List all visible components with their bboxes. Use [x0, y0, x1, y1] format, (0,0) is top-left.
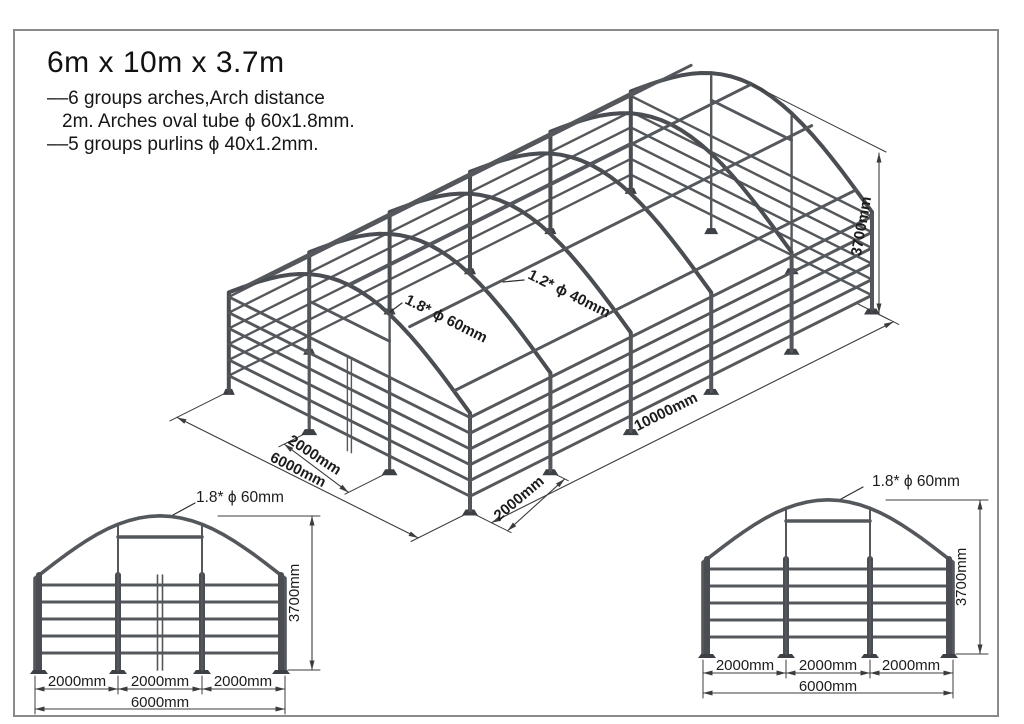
- near-side-rail: [470, 264, 872, 465]
- front-door-header: [309, 301, 389, 341]
- front-end-rail: [229, 360, 470, 481]
- dim-arrow: [703, 671, 713, 676]
- base-plate: [704, 228, 718, 234]
- dim-arrow: [409, 531, 420, 540]
- front-end-rail: [229, 313, 470, 434]
- elevation-foot: [698, 654, 716, 658]
- near-side-rail: [470, 280, 872, 481]
- near-side-rail: [470, 217, 872, 418]
- extension-line: [345, 472, 390, 494]
- elevation-foot: [272, 670, 290, 674]
- far-side-rail: [229, 159, 631, 360]
- front-tube-diameter-label: 1.8* ϕ 60mm: [196, 489, 284, 506]
- drawing-canvas: 1.8* ϕ 60mm 1.2* ϕ 40mm 2000mm 6000mm 20…: [0, 0, 1024, 724]
- front-bay-dim-2: 2000mm: [131, 673, 189, 690]
- rear-bay-dim-1: 2000mm: [716, 657, 774, 674]
- dim-arrow: [877, 153, 882, 163]
- dim-arrow: [310, 516, 315, 526]
- rear-end-rail: [631, 159, 872, 280]
- dim-arrow: [861, 671, 871, 676]
- front-height-dim: 3700mm: [286, 564, 303, 622]
- rear-tube-diameter-label: 1.8* ϕ 60mm: [872, 473, 960, 490]
- dim-arrow: [276, 687, 286, 692]
- tube-callout-leader: [841, 487, 863, 499]
- dim-arrow: [109, 687, 119, 692]
- rear-end-rail: [631, 127, 872, 248]
- dim-arrow: [202, 687, 212, 692]
- dim-arrow: [786, 671, 796, 676]
- dim-arrow: [978, 500, 983, 510]
- dim-arrow: [884, 319, 895, 328]
- iso-arch-diameter-label: 1.8* ϕ 60mm: [402, 291, 490, 346]
- tube-callout-leader: [173, 503, 195, 515]
- arch-callout-leader: [390, 303, 402, 312]
- far-side-rail: [229, 112, 631, 313]
- engineering-drawing-page: 6m x 10m x 3.7m ––6 groups arches,Arch d…: [0, 0, 1024, 724]
- front-bay-dim-3: 2000mm: [214, 673, 272, 690]
- rear-bay-dim-3: 2000mm: [882, 657, 940, 674]
- elevation-arch-tube: [35, 516, 285, 670]
- front-end-rail: [229, 376, 470, 497]
- dim-arrow: [944, 691, 954, 696]
- dim-arrow: [118, 687, 128, 692]
- dim-arrow: [978, 645, 983, 655]
- elevation-arch-tube: [703, 500, 953, 654]
- front-total-dim: 6000mm: [131, 694, 189, 711]
- elevation-foot: [30, 670, 48, 674]
- rear-total-dim: 6000mm: [799, 678, 857, 695]
- dim-arrow: [944, 671, 954, 676]
- extension-line: [170, 391, 229, 421]
- dim-arrow: [176, 415, 187, 424]
- rear-door-header: [711, 100, 791, 140]
- elevation-foot: [940, 654, 958, 658]
- rear-bay-dim-2: 2000mm: [799, 657, 857, 674]
- dim-arrow: [777, 671, 787, 676]
- rear-end-rail: [631, 112, 872, 233]
- dim-arrow: [703, 691, 713, 696]
- dim-arrow: [310, 661, 315, 671]
- dim-arrow: [35, 687, 45, 692]
- purlin-callout-leader: [503, 280, 524, 282]
- front-bay-dim-1: 2000mm: [48, 673, 106, 690]
- near-side-rail: [470, 295, 872, 496]
- front-end-rail: [229, 328, 470, 449]
- dim-arrow: [193, 687, 203, 692]
- extension-line: [411, 512, 470, 542]
- dim-arrow: [35, 707, 45, 712]
- dim-arrow: [276, 707, 286, 712]
- dim-arrow: [870, 671, 880, 676]
- extension-line: [550, 472, 568, 481]
- rear-height-dim: 3700mm: [953, 548, 970, 606]
